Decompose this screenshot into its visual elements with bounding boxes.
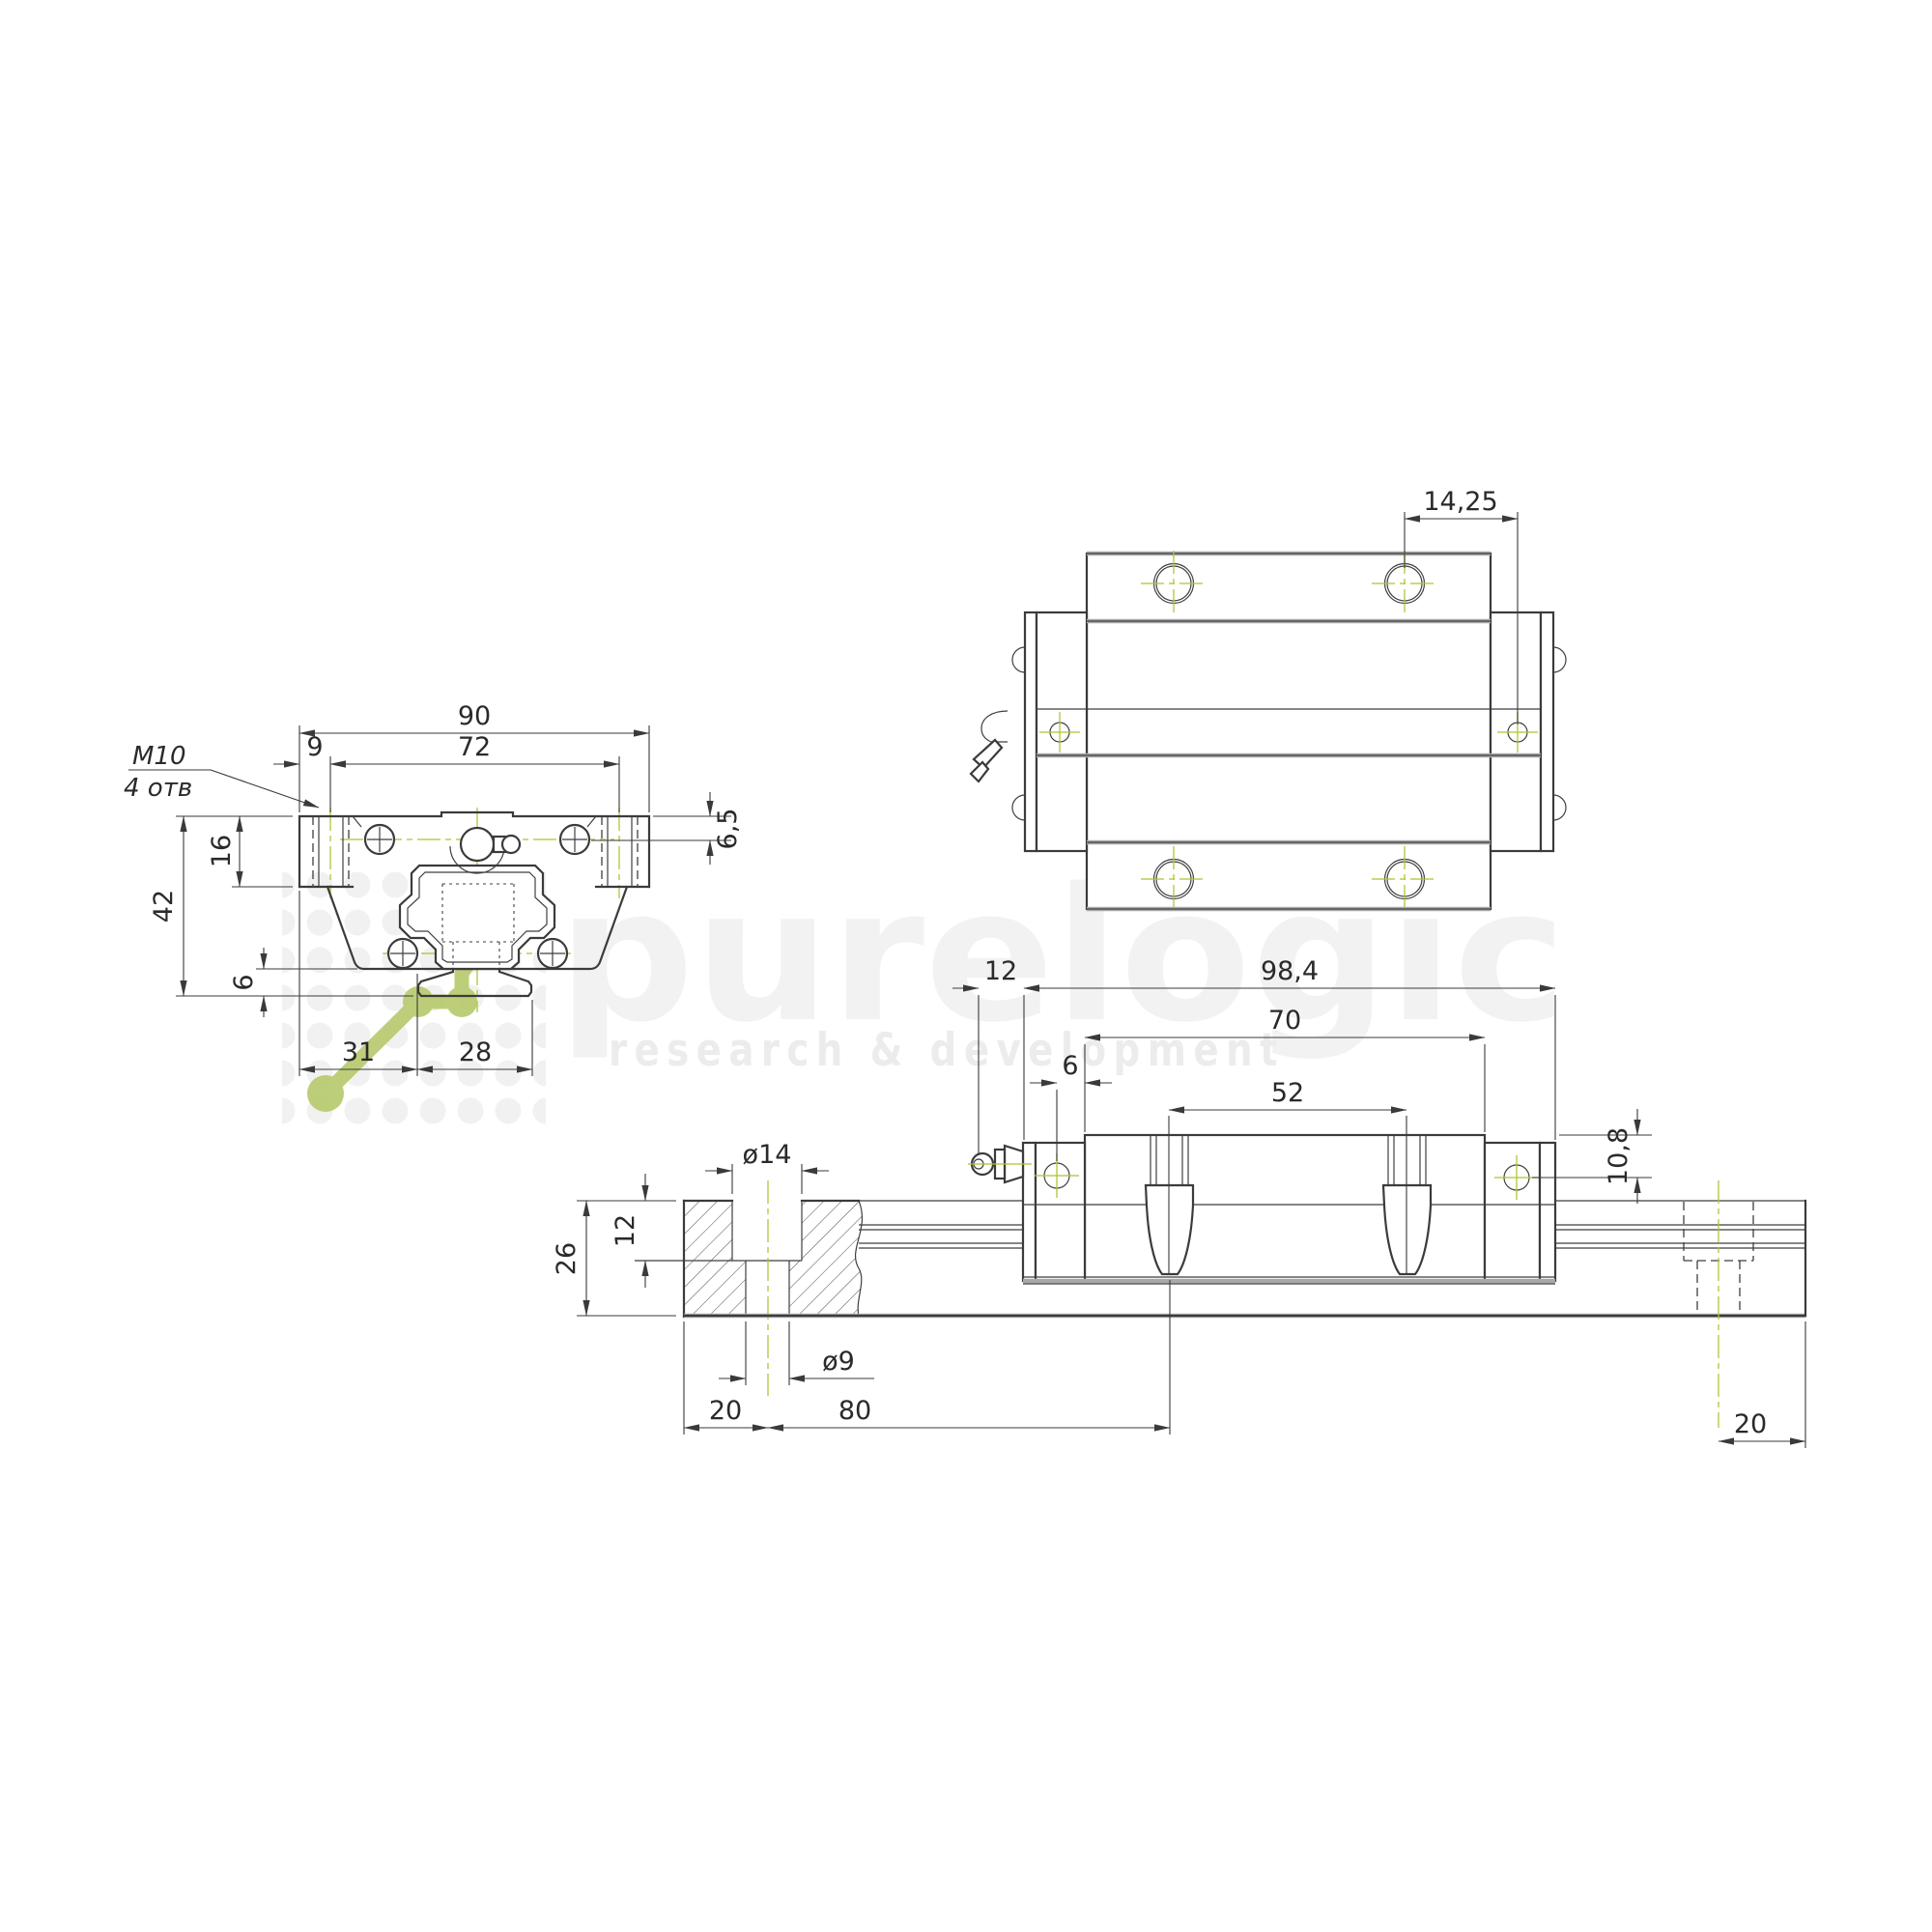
dim-52: 52 [1271,1078,1304,1108]
dim-42: 42 [149,890,179,923]
seal-bump [1553,795,1566,820]
dim-14_25: 14,25 [1423,487,1497,517]
dim-12-nipple: 12 [984,956,1017,986]
cad-drawing: purelogic research & development [0,0,1932,1932]
grease-nipple-top [971,711,1008,781]
dim-90: 90 [458,701,491,731]
dim-28: 28 [459,1037,492,1067]
dim-6-side: 6 [1062,1051,1078,1081]
dim-16: 16 [207,835,237,867]
dim-72: 72 [458,732,491,762]
label-m10: M10 [132,742,186,771]
seal-bump [1012,795,1025,820]
dim-31: 31 [342,1037,375,1067]
dim-20-left: 20 [709,1396,742,1426]
dim-12-depth: 12 [611,1214,640,1247]
dim-80: 80 [838,1396,871,1426]
seal-bump [1012,647,1025,672]
dim-98_4: 98,4 [1261,956,1319,986]
carriage-side [1023,1135,1555,1284]
dim-6_5: 6,5 [713,809,743,850]
dim-70: 70 [1268,1006,1301,1036]
label-4otv: 4 отв [124,774,192,803]
dim-20-right: 20 [1734,1409,1767,1439]
dim-9: 9 [306,732,323,762]
grease-nipple-side [968,1146,1032,1182]
right-end-plate [1541,612,1553,851]
dim-10_8: 10,8 [1604,1127,1634,1185]
dim-6-front: 6 [229,974,259,990]
dim-26: 26 [552,1242,582,1275]
watermark-tagline: research & development [609,1024,1285,1077]
drawing-page: purelogic research & development [0,0,1932,1932]
top-view: 14,25 [971,487,1566,912]
seal-bump [1553,647,1566,672]
dim-d14: ø14 [743,1140,792,1170]
dim-d9: ø9 [822,1347,855,1377]
left-end-plate [1025,612,1037,851]
